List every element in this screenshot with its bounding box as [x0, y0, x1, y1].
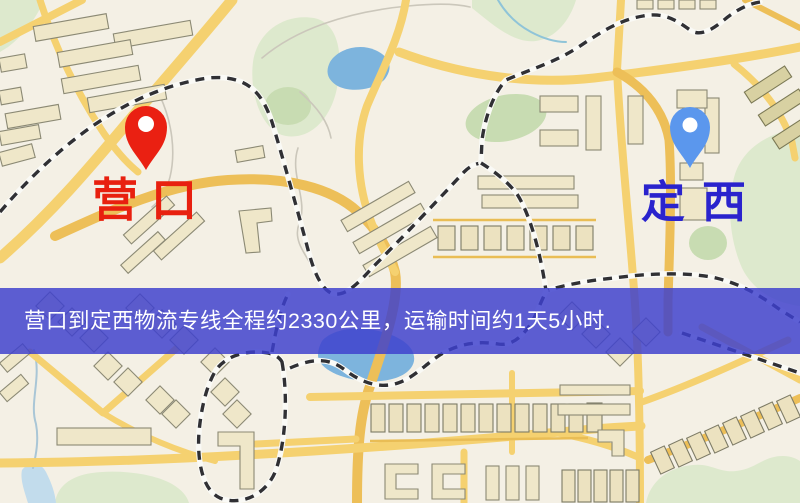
destination-pin-icon — [670, 107, 710, 168]
route-info-banner: 营口到定西物流专线全程约2330公里，运输时间约1天5小时. — [0, 288, 800, 354]
route-info-text: 营口到定西物流专线全程约2330公里，运输时间约1天5小时. — [0, 288, 800, 354]
origin-city-label: 营口 — [92, 178, 210, 224]
buildings — [0, 0, 800, 502]
origin-pin-icon — [125, 106, 167, 170]
map-canvas: 营口 定西 营口到定西物流专线全程约2330公里，运输时间约1天5小时. — [0, 0, 800, 503]
destination-city-label: 定西 — [641, 181, 763, 225]
street-map — [0, 0, 800, 503]
